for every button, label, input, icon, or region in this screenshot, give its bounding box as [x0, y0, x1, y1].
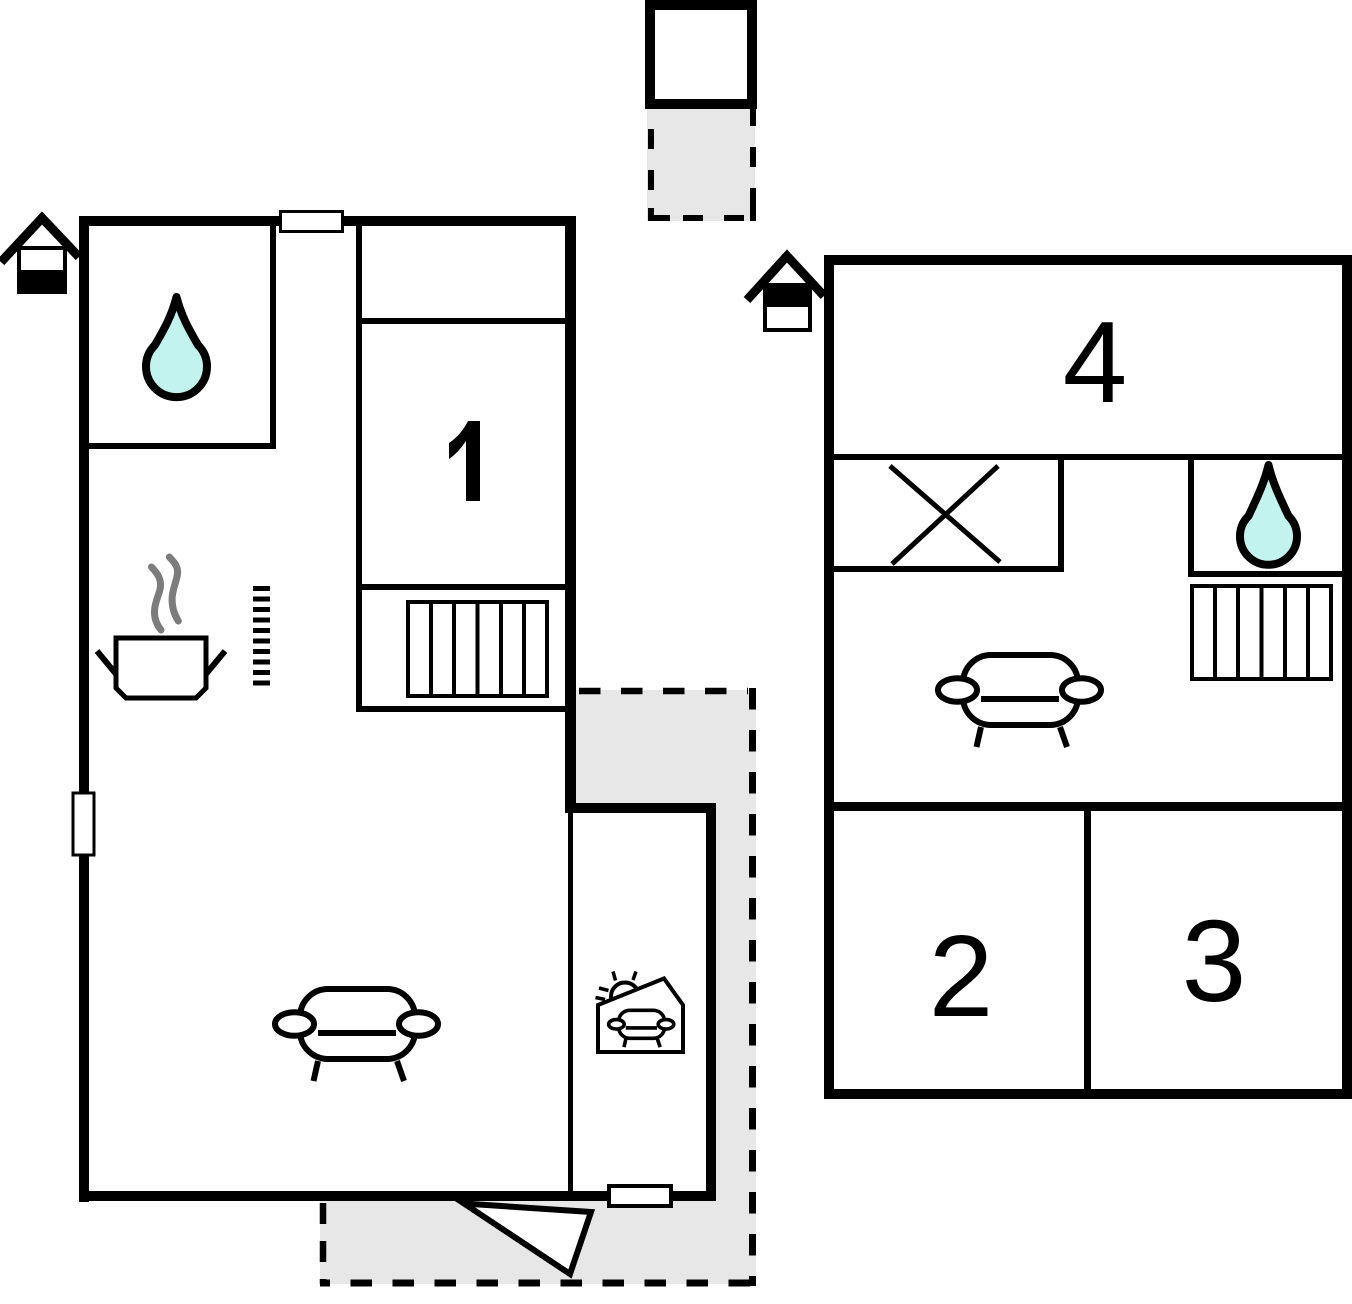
svg-text:4: 4: [1063, 297, 1128, 427]
svg-text:2: 2: [929, 911, 994, 1041]
svg-text:3: 3: [1182, 896, 1247, 1026]
